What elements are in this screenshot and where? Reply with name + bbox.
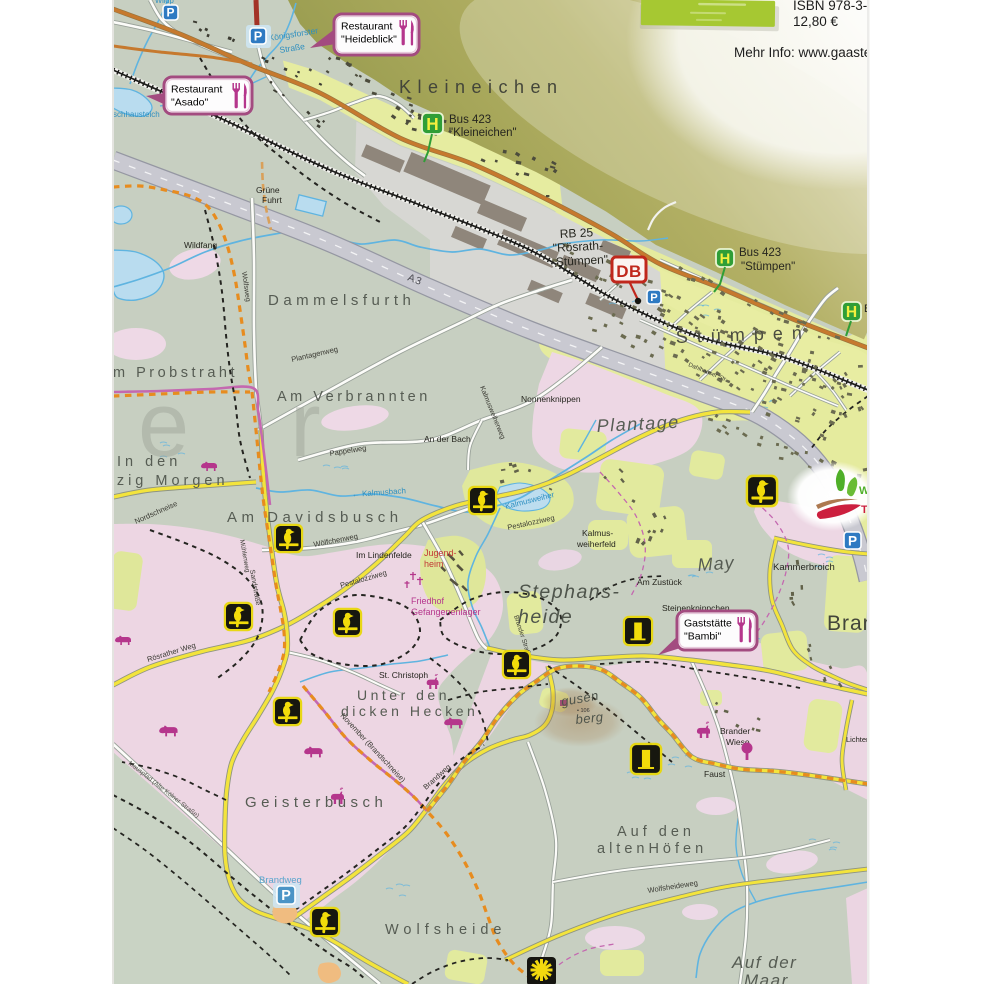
svg-text:Geisterbusch: Geisterbusch <box>245 794 387 811</box>
svg-text:Restaurant: Restaurant <box>341 21 392 33</box>
svg-text:rzig Morgen: rzig Morgen <box>108 473 229 489</box>
svg-text:DB: DB <box>616 262 642 281</box>
svg-text:P: P <box>848 533 857 548</box>
svg-text:dicken Hecken: dicken Hecken <box>341 703 478 719</box>
svg-text:P: P <box>650 292 658 304</box>
svg-text:P: P <box>254 28 263 43</box>
svg-text:"Heideblick": "Heideblick" <box>341 34 397 46</box>
svg-text:Kammerbroich: Kammerbroich <box>773 562 835 573</box>
svg-text:T: T <box>861 504 868 516</box>
svg-text:H: H <box>426 114 438 134</box>
svg-text:Am Zustück: Am Zustück <box>637 577 683 587</box>
svg-text:weiherfeld: weiherfeld <box>576 539 616 549</box>
svg-text:altenHöfen: altenHöfen <box>597 841 707 857</box>
svg-text:May: May <box>697 552 735 575</box>
svg-text:Auf der: Auf der <box>731 953 797 972</box>
svg-text:Mehr Info: www.gaaster: Mehr Info: www.gaaster <box>734 45 876 60</box>
svg-text:"Asado": "Asado" <box>171 97 208 109</box>
svg-text:Dammelsfurth: Dammelsfurth <box>268 292 415 309</box>
svg-text:• 106: • 106 <box>577 708 590 714</box>
svg-text:Im Lindenfelde: Im Lindenfelde <box>356 550 412 560</box>
svg-text:St. Christoph: St. Christoph <box>379 670 428 680</box>
svg-text:Auf den: Auf den <box>617 824 695 840</box>
svg-text:"Bambi": "Bambi" <box>684 631 721 643</box>
svg-text:Gefangenenlager: Gefangenenlager <box>411 607 481 617</box>
svg-text:P: P <box>281 888 291 904</box>
svg-text:Faust: Faust <box>704 769 726 779</box>
svg-text:Grüne: Grüne <box>256 185 280 195</box>
svg-text:Kalmus-: Kalmus- <box>582 528 613 538</box>
svg-text:Jugend-: Jugend- <box>424 548 457 558</box>
svg-text:H: H <box>846 304 857 321</box>
svg-text:schhausteich: schhausteich <box>113 110 160 119</box>
svg-text:Stümpen": Stümpen" <box>555 252 608 269</box>
svg-text:In den: In den <box>117 454 181 470</box>
svg-text:heide: heide <box>518 606 573 628</box>
svg-text:"Stümpen": "Stümpen" <box>741 261 795 273</box>
svg-text:Brander: Brander <box>720 726 750 736</box>
svg-text:Am Davidsbusch: Am Davidsbusch <box>227 509 403 526</box>
svg-text:Gaststätte: Gaststätte <box>684 618 732 630</box>
svg-text:Wolfsheide: Wolfsheide <box>385 922 506 938</box>
svg-text:Am Verbrannten: Am Verbrannten <box>277 389 431 405</box>
svg-text:m Probstraht: m Probstraht <box>113 365 238 381</box>
svg-text:heim: heim <box>424 559 444 569</box>
svg-text:Unter den: Unter den <box>357 687 450 703</box>
svg-text:H: H <box>720 251 731 267</box>
svg-text:P: P <box>166 6 174 20</box>
svg-text:ISBN 978-3-9: ISBN 978-3-9 <box>793 0 875 13</box>
svg-text:Bus 423: Bus 423 <box>739 247 781 259</box>
svg-text:An der Bach: An der Bach <box>424 434 471 444</box>
svg-text:Fuhrt: Fuhrt <box>262 195 282 205</box>
svg-text:Restaurant: Restaurant <box>171 84 222 96</box>
svg-text:Kleineichen: Kleineichen <box>399 77 564 97</box>
svg-text:Friedhof: Friedhof <box>411 596 445 606</box>
svg-text:12,80 €: 12,80 € <box>793 14 839 29</box>
svg-text:Stephans-: Stephans- <box>518 581 620 603</box>
svg-text:Wildfang: Wildfang <box>184 240 217 250</box>
svg-text:Maar: Maar <box>744 971 789 984</box>
svg-text:"Kleineichen": "Kleineichen" <box>449 127 517 139</box>
svg-text:Bus 423: Bus 423 <box>449 114 491 126</box>
svg-text:Nonnenknippen: Nonnenknippen <box>521 394 581 404</box>
